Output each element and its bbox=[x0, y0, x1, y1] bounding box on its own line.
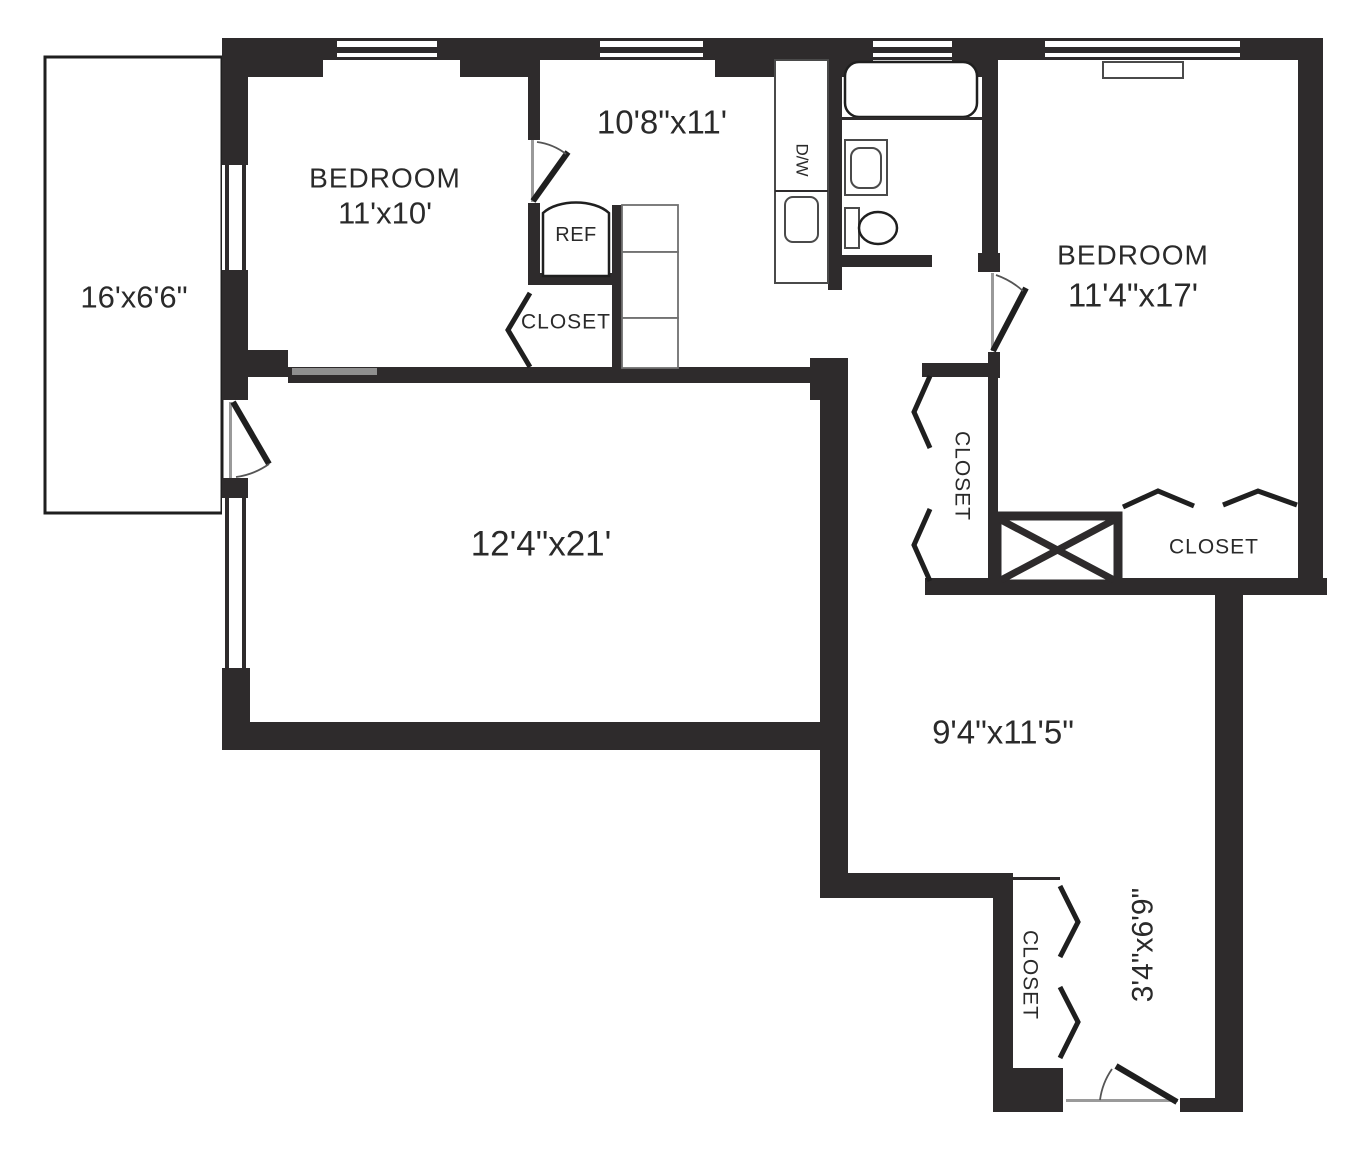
bifold-bedroom2-closet-right bbox=[1223, 491, 1297, 505]
bathtub-edge-line bbox=[842, 117, 982, 120]
bedroom2-dimension: 11'4"x17' bbox=[1068, 277, 1198, 314]
kitchen-dimension: 10'8"x11' bbox=[597, 104, 727, 141]
wall-bedroom1-bottom-block bbox=[248, 350, 288, 377]
bedroom1-door bbox=[531, 140, 568, 202]
wall-hallway-bottom bbox=[820, 873, 1013, 898]
wall-right-lower bbox=[1215, 595, 1243, 1112]
entry-closet-label: CLOSET bbox=[1019, 930, 1042, 1020]
bifold-entry-closet-lower bbox=[1060, 987, 1078, 1058]
bifold-doors bbox=[508, 293, 1297, 1058]
window-bedroom2-top bbox=[1045, 38, 1240, 60]
kitchen-cabinet-3 bbox=[622, 318, 678, 368]
wall-ref-left bbox=[528, 203, 540, 283]
bedroom2-closet-label: CLOSET bbox=[1169, 536, 1259, 559]
balcony-dimension: 16'x6'6" bbox=[80, 280, 187, 315]
kitchen-sink bbox=[785, 197, 818, 242]
bedroom1-dimension: 11'x10' bbox=[338, 196, 432, 231]
wall-bath-bottom bbox=[842, 255, 932, 267]
wall-left-stub bbox=[222, 478, 248, 498]
wall-bath-right-stub bbox=[978, 253, 1000, 272]
window-bedroom1-top bbox=[337, 38, 437, 60]
shaft-box bbox=[997, 516, 1118, 584]
wall-entry-closet-left bbox=[993, 873, 1013, 1112]
wall-top-block-2 bbox=[460, 38, 537, 77]
bifold-bedroom2-closet-left bbox=[1123, 491, 1194, 507]
wall-right bbox=[1298, 38, 1323, 595]
wall-living-right bbox=[820, 358, 848, 877]
window-kitchen-top bbox=[600, 38, 703, 60]
dishwasher-label: D/W bbox=[793, 143, 812, 176]
bifold-hall-closet-upper bbox=[914, 376, 930, 448]
kitchen-cabinet-1 bbox=[622, 205, 678, 252]
wall-left-upper bbox=[222, 38, 248, 165]
bathroom-sink-basin bbox=[851, 148, 881, 188]
window-living-left bbox=[222, 498, 248, 668]
bathtub bbox=[845, 62, 977, 117]
entry-closet-top-line bbox=[1008, 877, 1060, 880]
hallway-dimension: 9'4"x11'5" bbox=[932, 714, 1074, 751]
bedroom1-label: BEDROOM bbox=[309, 163, 461, 194]
wall-hall-closet-top bbox=[922, 363, 998, 377]
bifold-hall-closet-lower bbox=[914, 509, 930, 581]
living-room-dimension: 12'4"x21' bbox=[471, 525, 612, 564]
wall-muted-segment bbox=[292, 368, 377, 375]
balcony-door bbox=[229, 402, 269, 478]
entry-corridor-dimension: 3'4"x6'9" bbox=[1127, 888, 1160, 1003]
bedroom2-label: BEDROOM bbox=[1057, 240, 1209, 271]
toilet-bowl bbox=[859, 212, 897, 244]
entry-door bbox=[1066, 1066, 1178, 1102]
bedroom2-window-shelf bbox=[1103, 62, 1183, 78]
wall-entry-stub bbox=[1180, 1098, 1217, 1112]
refrigerator-label: REF bbox=[555, 224, 597, 246]
kitchen-closet-label: CLOSET bbox=[521, 311, 611, 334]
bedroom2-door bbox=[991, 273, 1026, 351]
wall-kitchen-bath bbox=[828, 60, 842, 290]
wall-bedroom1-kitchen-upper bbox=[528, 60, 540, 140]
wall-bath-right bbox=[982, 60, 998, 253]
wall-closet-bottom bbox=[925, 578, 1327, 595]
wall-balcony-corner bbox=[222, 340, 248, 398]
window-bedroom1-left bbox=[222, 165, 248, 270]
wall-bottom-living bbox=[222, 722, 848, 750]
kitchen-counter-divider bbox=[775, 190, 828, 192]
wall-kitchen-closet-right bbox=[612, 205, 622, 383]
toilet-tank bbox=[845, 208, 859, 248]
window-bathroom-top bbox=[873, 38, 952, 60]
bifold-entry-closet-upper bbox=[1060, 886, 1078, 957]
floor-plan-drawing: 16'x6'6" BEDROOM 11'x10' 10'8"x11' REF D… bbox=[0, 0, 1369, 1152]
floor-plan: 16'x6'6" BEDROOM 11'x10' 10'8"x11' REF D… bbox=[0, 0, 1369, 1152]
kitchen-cabinet-2 bbox=[622, 252, 678, 318]
hall-closet-label: CLOSET bbox=[951, 431, 974, 521]
